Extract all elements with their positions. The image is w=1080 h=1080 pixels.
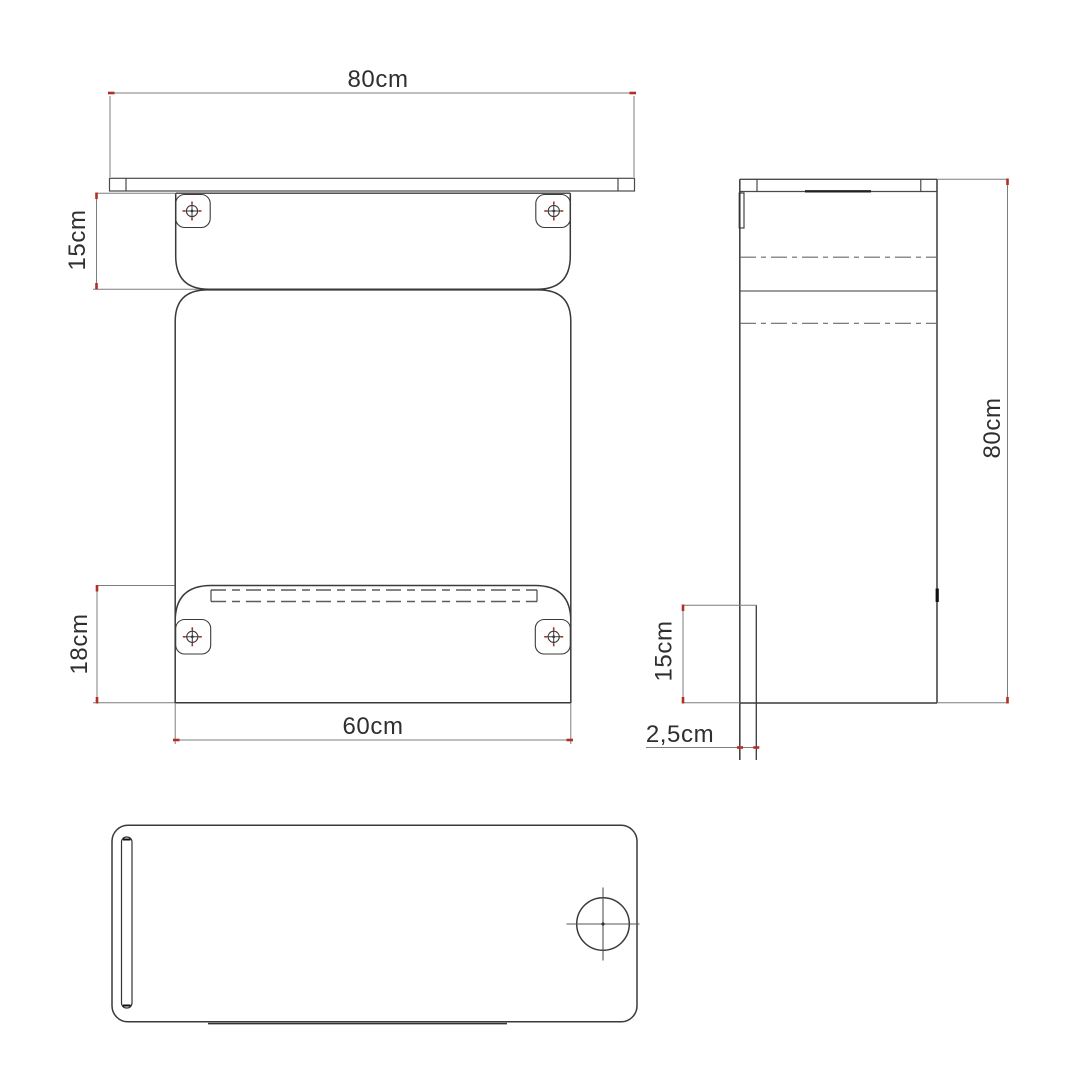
technical-drawing-sheet: 80cm 15cm 18cm — [0, 0, 1080, 1080]
front-bottom-width-label: 60cm — [342, 713, 403, 740]
side-bottom-bracket-label: 15cm — [651, 620, 678, 681]
front-width-label: 80cm — [347, 66, 408, 93]
grommet-hole-icon — [567, 888, 640, 961]
side-dimension-15cm: 15cm — [651, 605, 758, 704]
screw-crosshair-icon — [544, 202, 563, 221]
front-lower-height-label: 18cm — [66, 613, 93, 674]
side-panel-outline — [739, 179, 937, 760]
cable-slot — [122, 837, 133, 1008]
tabletop-front — [110, 178, 635, 191]
side-thickness-label: 2,5cm — [646, 721, 714, 748]
front-upper-height-label: 15cm — [64, 209, 91, 270]
top-view — [112, 825, 640, 1023]
tabletop-top-view — [112, 825, 637, 1022]
lower-bracket — [175, 586, 571, 703]
side-height-label: 80cm — [979, 397, 1006, 458]
side-dimension-80cm: 80cm — [937, 179, 1008, 704]
screw-crosshair-icon — [544, 627, 563, 646]
screw-crosshair-icon — [183, 202, 202, 221]
front-dimension-80cm: 80cm — [108, 66, 636, 177]
upper-bracket — [176, 193, 571, 289]
screw-crosshair-icon — [183, 627, 202, 646]
front-view: 80cm 15cm 18cm — [64, 66, 636, 744]
front-dimension-60cm: 60cm — [173, 703, 573, 744]
front-dimension-18cm: 18cm — [66, 585, 175, 704]
technical-drawing: 80cm 15cm 18cm — [0, 0, 1080, 1080]
hidden-edge-dashes — [211, 590, 537, 602]
front-dimension-15cm: 15cm — [64, 193, 206, 290]
leg-panel — [175, 290, 571, 703]
side-view: 80cm 15cm 2,5cm — [646, 179, 1008, 761]
side-tabletop-edge — [740, 179, 937, 191]
side-dimension-2-5cm: 2,5cm — [646, 721, 759, 748]
